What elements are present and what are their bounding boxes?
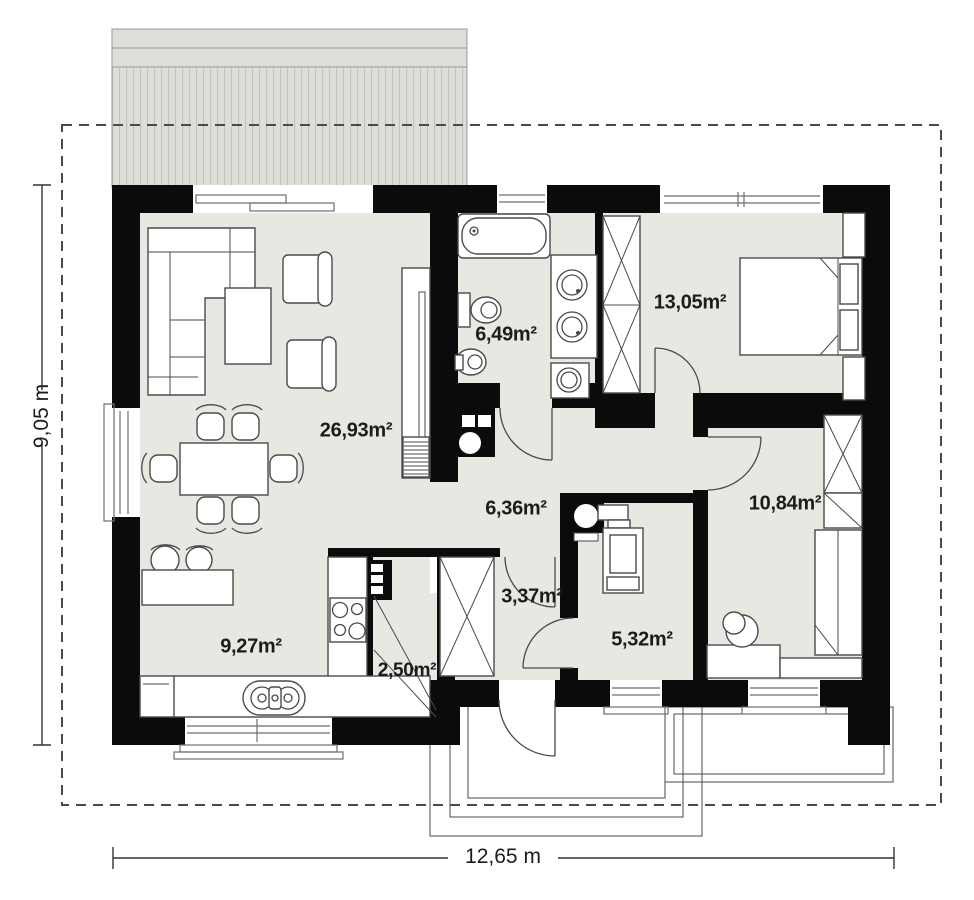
porch-step-middle: [450, 705, 683, 817]
chimney-hallway: [457, 400, 495, 457]
bedroom-window: [660, 185, 823, 213]
fridge: [140, 676, 174, 717]
corridor-wardrobe: [440, 557, 494, 676]
washing-machine: [551, 363, 589, 398]
room-label-living-dining: 26,93m²: [320, 420, 392, 443]
nightstand: [843, 357, 865, 400]
cooktop: [330, 598, 366, 642]
room-label-bedroom: 13,05m²: [654, 292, 726, 315]
floor-plan-drawing: [0, 0, 974, 900]
utility-window: [604, 680, 668, 714]
terrace-deck: [112, 29, 467, 188]
dining-window: [104, 404, 140, 521]
coffee-table: [225, 288, 271, 364]
wardrobe: [824, 415, 862, 528]
room-label-hallway: 6,36m²: [485, 498, 547, 521]
kitchen-window: [174, 717, 343, 759]
height-dimension-label: 9,05 m: [30, 384, 54, 448]
bidet: [455, 349, 486, 375]
front-door-opening: [499, 680, 555, 707]
room-label-bathroom: 6,49m²: [475, 324, 537, 347]
height-dimension-line: [33, 185, 51, 745]
fireplace-unit: [402, 268, 430, 478]
nightstand: [843, 213, 865, 257]
room-label-kitchen: 9,27m²: [220, 636, 282, 659]
vanity-washbasins: [551, 255, 597, 358]
wall-hall-bedroom2: [693, 490, 708, 680]
deck-boards: [112, 67, 467, 188]
room-label-utility: 5,32m²: [611, 629, 673, 652]
chimney-kitchen: [367, 560, 392, 600]
pillow: [840, 310, 858, 350]
built-in-wardrobe: [603, 216, 640, 393]
entrance-porch-steps: [430, 705, 702, 836]
kitchen-sink: [243, 681, 305, 715]
armchair: [283, 252, 332, 306]
floor-plan: 26,93m² 6,49m² 13,05m² 6,36m² 3,37m² 5,3…: [0, 0, 974, 900]
room-label-corridor: 3,37m²: [501, 586, 563, 609]
dining-table: [180, 443, 268, 495]
bathtub: [458, 214, 550, 258]
bedroom2-window: [742, 680, 826, 714]
bar-counter: [142, 570, 233, 605]
bathroom-window: [497, 185, 547, 213]
double-bed: [740, 258, 862, 355]
terrace-sliding-door: [193, 185, 373, 213]
room-label-pantry: 2,50m²: [378, 660, 436, 682]
single-bed: [815, 530, 862, 655]
porch-step-outer: [430, 705, 702, 836]
front-door: [499, 700, 555, 756]
room-label-bedroom-2: 10,84m²: [749, 493, 821, 516]
armchair: [287, 337, 336, 391]
pillow: [840, 264, 858, 304]
width-dimension-label: 12,65 m: [465, 845, 541, 869]
porch-platform: [468, 705, 665, 798]
wall-living-bathroom: [430, 213, 458, 482]
